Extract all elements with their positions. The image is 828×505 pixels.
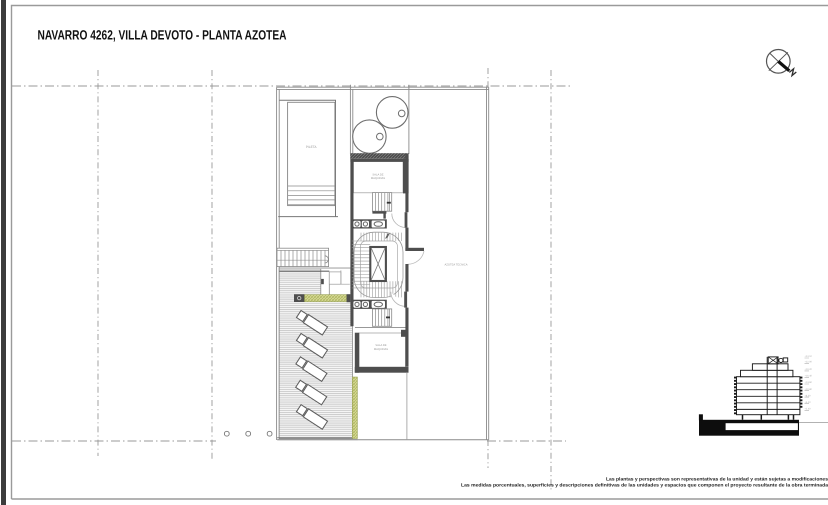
svg-text:+5.20: +5.20 xyxy=(805,401,812,404)
svg-text:+8.00: +8.00 xyxy=(805,394,812,397)
svg-text:+10.80: +10.80 xyxy=(805,388,813,391)
svg-text:+19.20: +19.20 xyxy=(805,368,813,371)
svg-text:+22.00: +22.00 xyxy=(805,361,813,364)
svg-text:SALA DE: SALA DE xyxy=(372,173,383,176)
svg-text:NAVARRO 4262, VILLA DEVOTO - P: NAVARRO 4262, VILLA DEVOTO - PLANTA AZOT… xyxy=(38,28,287,43)
svg-text:SALA DE: SALA DE xyxy=(375,344,386,347)
svg-text:+13.60: +13.60 xyxy=(805,381,813,384)
svg-text:MAQUINAS: MAQUINAS xyxy=(371,177,386,180)
svg-text:Las plantas y perspectivas son: Las plantas y perspectivas son represent… xyxy=(606,477,828,482)
svg-text:PILETA: PILETA xyxy=(306,145,318,149)
svg-text:+24.10: +24.10 xyxy=(805,355,813,358)
svg-text:Las medidas porcentuales, supe: Las medidas porcentuales, superficies y … xyxy=(461,483,828,488)
svg-text:AZOTEA TECNICA: AZOTEA TECNICA xyxy=(444,263,467,266)
svg-text:+16.40: +16.40 xyxy=(805,375,813,378)
svg-text:MAQUINAS: MAQUINAS xyxy=(374,348,389,351)
svg-text:+2.40: +2.40 xyxy=(805,408,812,411)
